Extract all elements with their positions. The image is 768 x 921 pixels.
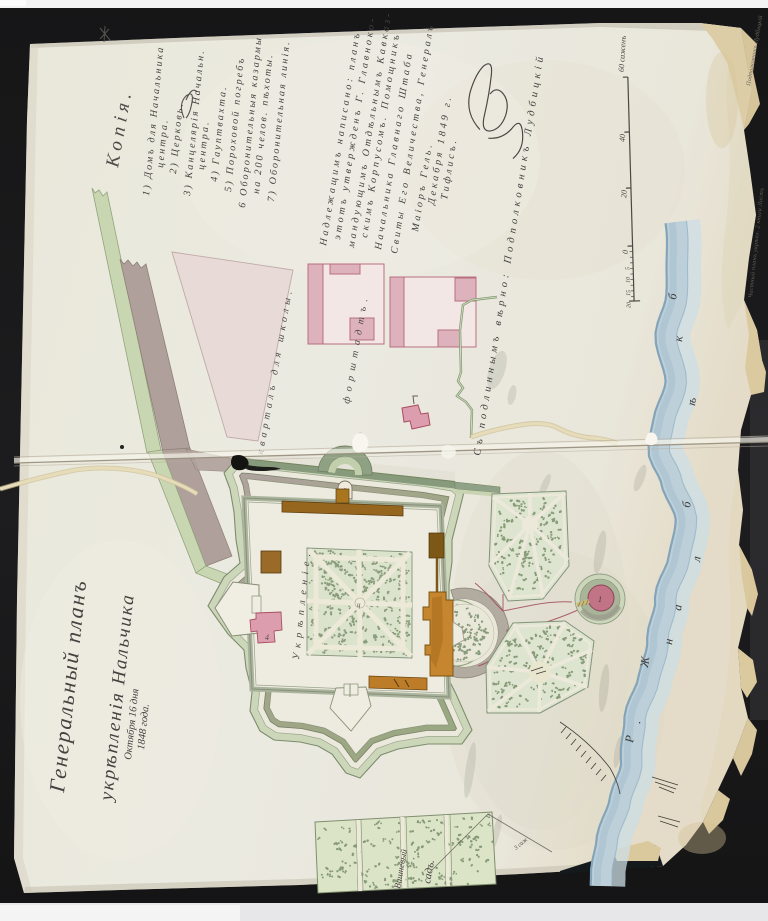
svg-text:20: 20	[626, 302, 632, 308]
svg-text:1: 1	[598, 595, 602, 604]
svg-text:10: 10	[626, 277, 632, 283]
svg-text:5: 5	[625, 267, 631, 270]
svg-text:0: 0	[621, 250, 630, 255]
svg-text:40: 40	[618, 134, 627, 143]
svg-text:ц: ц	[357, 601, 361, 609]
svg-text:4: 4	[265, 633, 269, 642]
svg-text:ѣ: ѣ	[684, 397, 699, 407]
svg-text:15: 15	[626, 290, 632, 296]
svg-text:20: 20	[619, 190, 628, 199]
